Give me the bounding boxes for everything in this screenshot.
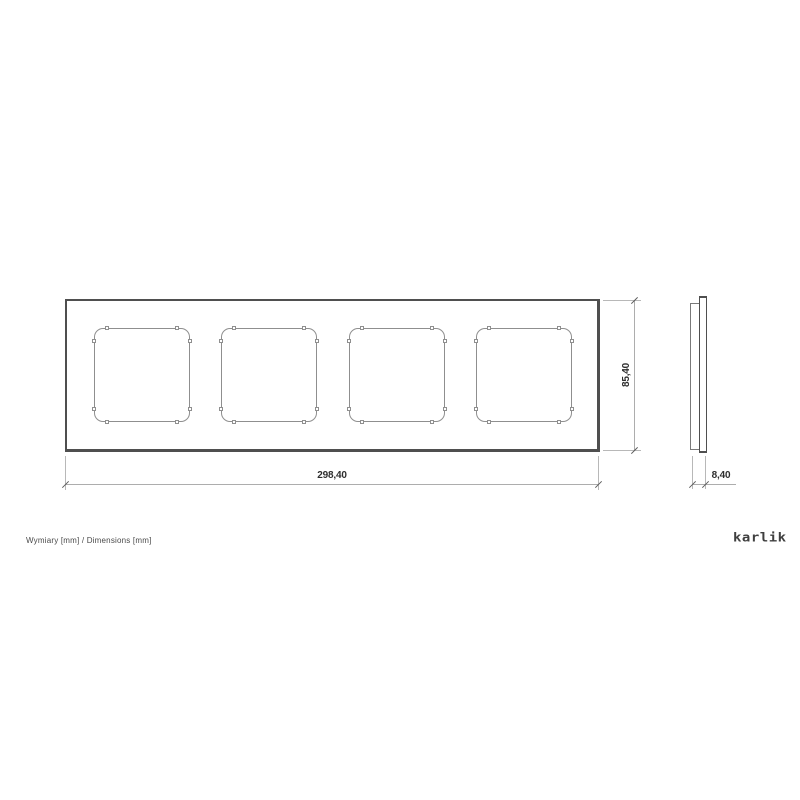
clip-notch	[175, 420, 179, 424]
clip-notch	[557, 326, 561, 330]
clip-notch	[219, 407, 223, 411]
clip-notch	[443, 339, 447, 343]
clip-notch	[105, 326, 109, 330]
clip-notch	[430, 326, 434, 330]
technical-drawing-canvas: 298,40 85,40 8,40 Wymiary [mm] / Dimensi…	[0, 0, 800, 800]
clip-notch	[232, 420, 236, 424]
clip-notch	[315, 407, 319, 411]
side-view-front-profile	[699, 296, 707, 453]
height-dimension-line	[634, 300, 635, 451]
clip-notch	[570, 407, 574, 411]
units-caption: Wymiary [mm] / Dimensions [mm]	[26, 536, 152, 545]
clip-notch	[347, 339, 351, 343]
clip-notch	[219, 339, 223, 343]
width-dimension-label: 298,40	[65, 470, 599, 482]
clip-notch	[302, 326, 306, 330]
clip-notch	[92, 407, 96, 411]
clip-notch	[557, 420, 561, 424]
width-dimension-line	[65, 484, 599, 485]
clip-notch	[474, 407, 478, 411]
module-opening	[221, 328, 317, 422]
module-opening	[476, 328, 572, 422]
height-dimension-label: 85,40	[621, 355, 633, 395]
clip-notch	[232, 326, 236, 330]
clip-notch	[487, 420, 491, 424]
clip-notch	[360, 420, 364, 424]
clip-notch	[443, 407, 447, 411]
clip-notch	[360, 326, 364, 330]
depth-dimension-label: 8,40	[706, 470, 736, 482]
clip-notch	[570, 339, 574, 343]
clip-notch	[92, 339, 96, 343]
module-opening	[94, 328, 190, 422]
module-opening	[349, 328, 445, 422]
clip-notch	[315, 339, 319, 343]
clip-notch	[302, 420, 306, 424]
clip-notch	[347, 407, 351, 411]
clip-notch	[175, 326, 179, 330]
clip-notch	[487, 326, 491, 330]
depth-dimension-line	[692, 484, 736, 485]
clip-notch	[474, 339, 478, 343]
brand-logo: karlik	[733, 531, 787, 545]
clip-notch	[430, 420, 434, 424]
clip-notch	[188, 339, 192, 343]
clip-notch	[105, 420, 109, 424]
clip-notch	[188, 407, 192, 411]
